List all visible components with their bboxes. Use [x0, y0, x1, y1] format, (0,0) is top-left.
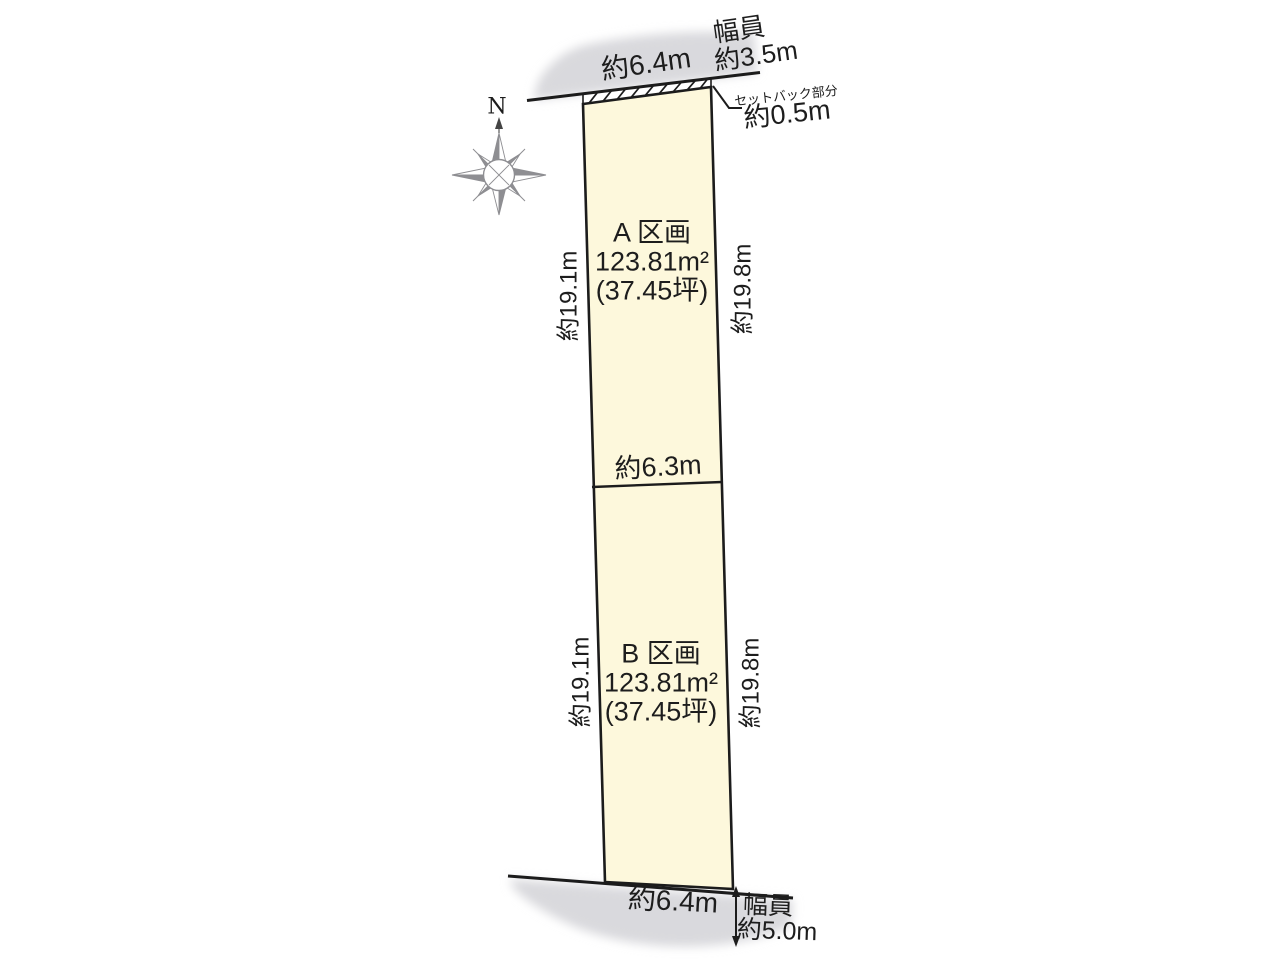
parcel-b-info: B 区画 123.81m² (37.45坪) — [604, 639, 718, 726]
bottom-frontage-dimension: 約6.4m — [627, 884, 719, 918]
parcel-b-right-dimension: 約19.8m — [731, 638, 766, 729]
parcel-a-left-dimension: 約19.1m — [549, 251, 584, 342]
parcel-b-tsubo: (37.45坪) — [604, 698, 718, 727]
parcel-b-name: B 区画 — [604, 639, 718, 668]
parcel-a-right-dimension: 約19.8m — [723, 244, 758, 335]
parcel-a-info: A 区画 123.81m² (37.45坪) — [595, 218, 709, 305]
parcel-a-tsubo: (37.45坪) — [595, 277, 709, 306]
north-label: N — [487, 95, 506, 118]
parcel-outline — [583, 87, 733, 889]
parcel-b-left-dimension: 約19.1m — [561, 637, 596, 728]
bottom-road-width-value: 約5.0m — [736, 916, 817, 945]
divider-dimension: 約6.3m — [614, 451, 702, 484]
compass-rose-icon — [452, 117, 546, 215]
parcel-a-name: A 区画 — [595, 218, 709, 247]
parcel-a-area: 123.81m² — [595, 247, 709, 276]
land-plot-diagram: N 約6.4m 幅員 約3.5m セットバック部分 約0.5m A 区画 123… — [0, 0, 1280, 960]
parcel-b-area: 123.81m² — [604, 668, 718, 697]
